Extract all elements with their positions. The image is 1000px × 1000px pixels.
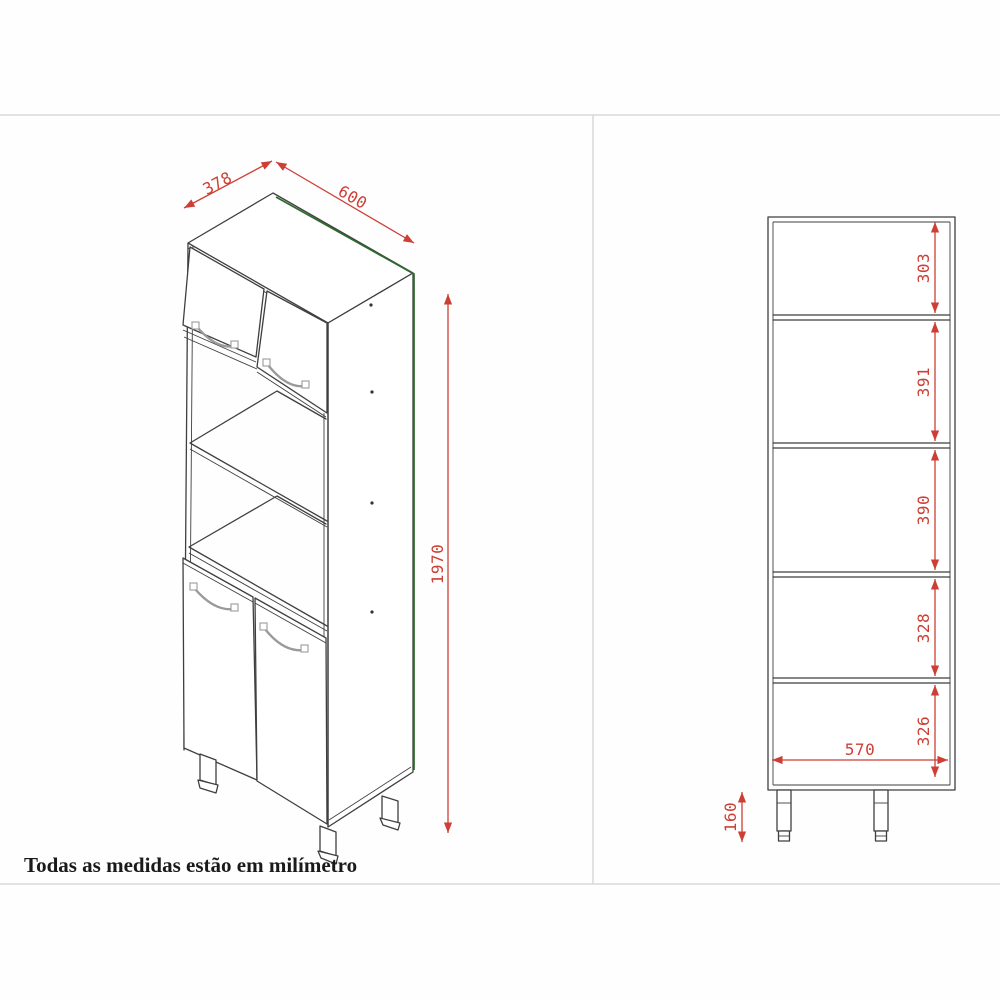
shelf-pin-hole	[370, 501, 373, 504]
dimension-label: 160	[721, 802, 740, 832]
cabinet-leg	[777, 790, 791, 831]
dimension-height: 1970	[428, 294, 448, 833]
side-panel	[328, 273, 413, 827]
dimension-label: 1970	[428, 544, 447, 585]
shelf-upper	[190, 391, 327, 521]
dimension-label: 326	[914, 716, 933, 746]
isometric-view: 378 600 1970	[183, 161, 448, 864]
elevation-legs	[777, 790, 888, 841]
handle-mount	[301, 645, 308, 652]
dimension-label: 600	[335, 181, 371, 213]
dimension-label: 378	[200, 168, 236, 199]
cabinet-technical-drawing: 378 600 1970	[0, 0, 1000, 1000]
shelf-upper-thickness	[190, 449, 327, 527]
cabinet-leg	[200, 754, 216, 785]
handle-mount	[263, 359, 270, 366]
shelf-pin-hole	[369, 303, 372, 306]
cabinet-leg	[874, 790, 888, 831]
dimension-label: 390	[914, 495, 933, 525]
handle-mount	[302, 381, 309, 388]
shelf-pin-hole	[370, 390, 373, 393]
handle-mount	[192, 322, 199, 329]
handle-mount	[190, 583, 197, 590]
handle-mount	[231, 341, 238, 348]
dimension-label: 328	[914, 613, 933, 643]
handle-mount	[231, 604, 238, 611]
technical-drawing-page: 378 600 1970	[0, 0, 1000, 1000]
lower-right-door	[255, 598, 327, 824]
lower-left-door	[183, 558, 257, 780]
shelf-pin-hole	[370, 610, 373, 613]
front-elevation-view: 303 391 390 328 326 570	[721, 217, 955, 842]
dimension-label: 391	[914, 367, 933, 397]
dimension-label: 570	[845, 740, 875, 759]
dimension-label: 303	[914, 253, 933, 283]
measurements-note: Todas as medidas estão em milímetro	[24, 853, 357, 878]
dimension-leg-height: 160	[721, 792, 742, 842]
handle-mount	[260, 623, 267, 630]
